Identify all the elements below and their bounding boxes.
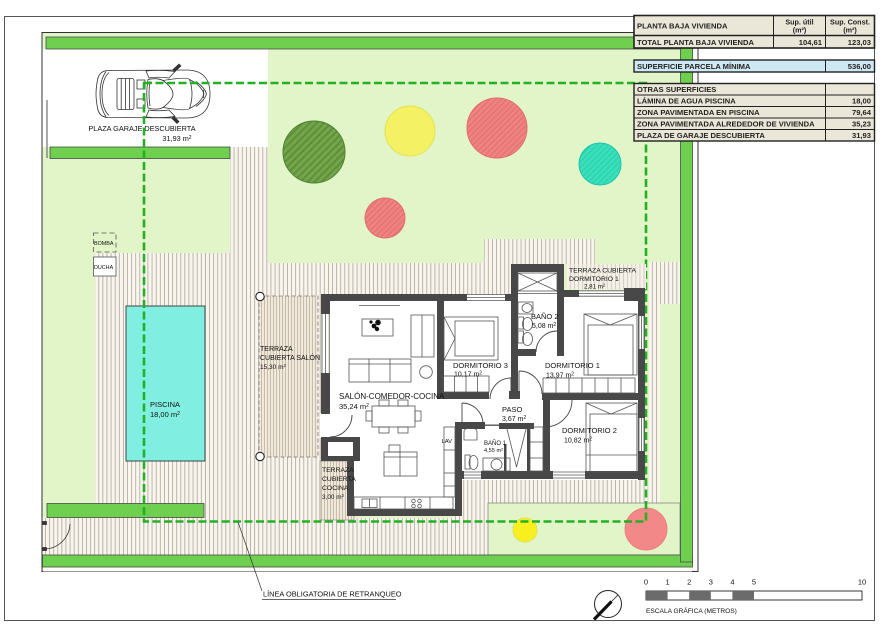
svg-text:3,67 m2: 3,67 m2 <box>502 415 526 423</box>
svg-text:BOMBA: BOMBA <box>94 241 114 247</box>
svg-text:10: 10 <box>858 578 866 587</box>
svg-text:31,93: 31,93 <box>852 131 871 140</box>
svg-text:3: 3 <box>709 578 713 587</box>
svg-text:PASO: PASO <box>502 405 522 414</box>
svg-text:536,00: 536,00 <box>848 62 871 71</box>
svg-text:BAÑO 2: BAÑO 2 <box>531 312 559 321</box>
svg-text:1: 1 <box>666 578 670 587</box>
svg-text:123,03: 123,03 <box>848 38 871 47</box>
svg-text:13,97 m2: 13,97 m2 <box>546 372 574 380</box>
svg-text:PLANTA BAJA VIVIENDA: PLANTA BAJA VIVIENDA <box>637 22 728 31</box>
svg-text:ESCALA GRÁFICA (METROS): ESCALA GRÁFICA (METROS) <box>646 606 737 615</box>
svg-text:10,17 m2: 10,17 m2 <box>454 371 482 379</box>
svg-text:18,00: 18,00 <box>852 97 871 106</box>
svg-text:CUBIERTA SALÓN: CUBIERTA SALÓN <box>260 353 320 362</box>
svg-text:DORMITORIO 3: DORMITORIO 3 <box>453 361 508 370</box>
svg-text:3,00 m2: 3,00 m2 <box>322 493 345 501</box>
svg-text:TERRAZA: TERRAZA <box>322 467 354 474</box>
svg-text:(m²): (m²) <box>793 26 807 35</box>
svg-text:OTRAS SUPERFICIES: OTRAS SUPERFICIES <box>637 85 716 94</box>
svg-text:PLAZA DE GARAJE DESCUBIERTA: PLAZA DE GARAJE DESCUBIERTA <box>637 131 765 140</box>
svg-text:2: 2 <box>687 578 691 587</box>
svg-text:PLAZA GARAJE DESCUBIERTA: PLAZA GARAJE DESCUBIERTA <box>88 124 195 133</box>
svg-text:SUPERFICIE PARCELA MÍNIMA: SUPERFICIE PARCELA MÍNIMA <box>637 62 751 71</box>
svg-text:LÁMINA DE AGUA PISCINA: LÁMINA DE AGUA PISCINA <box>637 97 736 106</box>
svg-text:TOTAL PLANTA BAJA VIVIENDA: TOTAL PLANTA BAJA VIVIENDA <box>637 38 755 47</box>
svg-text:0: 0 <box>644 578 648 587</box>
svg-text:SALÓN-COMEDOR-COCINA: SALÓN-COMEDOR-COCINA <box>339 392 445 401</box>
svg-text:ZONA PAVIMENTADA ALREDEDOR DE: ZONA PAVIMENTADA ALREDEDOR DE VIVIENDA <box>637 120 815 129</box>
svg-text:CUBIERTA: CUBIERTA <box>322 476 356 483</box>
svg-text:LAV: LAV <box>442 439 453 445</box>
svg-text:TERRAZA: TERRAZA <box>260 346 293 353</box>
svg-text:35,23: 35,23 <box>852 120 871 129</box>
svg-text:5: 5 <box>752 578 756 587</box>
svg-text:2,81 m2: 2,81 m2 <box>584 283 606 291</box>
svg-text:35,24 m2: 35,24 m2 <box>339 402 369 411</box>
svg-text:DORMITORIO 1: DORMITORIO 1 <box>569 276 619 283</box>
svg-text:DORMITORIO 2: DORMITORIO 2 <box>562 426 617 435</box>
svg-text:18,00 m2: 18,00 m2 <box>150 410 180 419</box>
svg-text:4,55 m2: 4,55 m2 <box>484 447 504 455</box>
svg-text:79,64: 79,64 <box>852 108 872 117</box>
svg-text:4: 4 <box>730 578 734 587</box>
svg-text:104,61: 104,61 <box>799 38 823 47</box>
svg-text:ZONA PAVIMENTADA EN PISCINA: ZONA PAVIMENTADA EN PISCINA <box>637 108 760 117</box>
svg-text:LÍNEA OBLIGATORIA DE RETRANQUE: LÍNEA OBLIGATORIA DE RETRANQUEO <box>263 590 402 599</box>
svg-text:DUCHA: DUCHA <box>94 265 114 271</box>
svg-text:TERRAZA CUBIERTA: TERRAZA CUBIERTA <box>569 268 636 275</box>
svg-text:31,93 m2: 31,93 m2 <box>162 134 191 143</box>
svg-text:DORMITORIO 1: DORMITORIO 1 <box>545 361 600 370</box>
svg-text:PISCINA: PISCINA <box>150 400 180 409</box>
svg-text:COCINA: COCINA <box>322 485 349 492</box>
svg-text:10,82 m2: 10,82 m2 <box>564 437 592 445</box>
svg-text:5,08 m2: 5,08 m2 <box>532 322 556 330</box>
svg-text:(m²): (m²) <box>843 26 857 35</box>
svg-text:15,30 m2: 15,30 m2 <box>260 363 287 371</box>
